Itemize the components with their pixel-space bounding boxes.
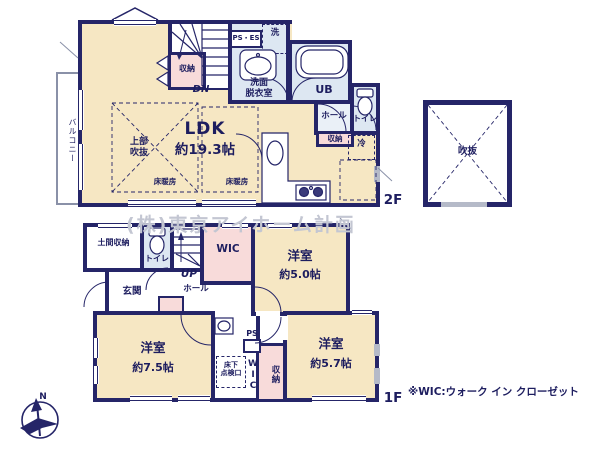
shoe-cabinet: [158, 296, 184, 313]
underfloor-label: 床下 点検口: [217, 361, 245, 378]
ldk-name-label: LDK: [160, 119, 250, 139]
storage-stairs-label: 収納: [172, 64, 202, 74]
ps-label: PS: [241, 329, 263, 339]
bath-label: UB: [302, 83, 346, 96]
balcony-label: バルコニー: [61, 95, 77, 185]
bedroom-a-name-label: 洋室: [274, 248, 326, 263]
ps-es-label: PS・ES: [229, 34, 263, 42]
floor-heating-label-1: 床暖房: [150, 177, 180, 186]
bedroom-b-size-label: 約7.5帖: [119, 361, 187, 374]
hall-2f-label: ホール: [313, 111, 355, 121]
toilet-2f-label: トイレ: [351, 114, 379, 124]
bedroom-b-name-label: 洋室: [127, 340, 179, 355]
washroom-label: 洗面 脱衣室: [232, 78, 286, 100]
void-label: 吹抜: [444, 146, 491, 157]
wic-1f-label: WIC: [204, 243, 252, 256]
storage-hall-label: 収納: [318, 134, 352, 143]
floor-2f-label: 2F: [380, 192, 406, 208]
washer-label: 洗: [265, 28, 285, 38]
wic-corridor-label: WIC: [244, 356, 258, 394]
dn-label: DN: [188, 84, 214, 96]
up-label: UP: [174, 268, 204, 281]
wic-note: ※WIC:ウォーク イン クローゼット: [408, 386, 594, 399]
doma-label: 土間収納: [86, 238, 141, 248]
floor-1f-label: 1F: [380, 390, 406, 406]
bedroom-c-name-label: 洋室: [305, 336, 357, 351]
ps-box: [243, 339, 261, 353]
fridge-label: 冷: [348, 139, 375, 149]
hall-1f-label: ホール: [174, 284, 218, 294]
compass-n-label: N: [36, 392, 50, 403]
entrance-label: 玄関: [112, 286, 152, 297]
floor-heating-label-2: 床暖房: [222, 177, 252, 186]
floor-plan-canvas: バルコニー LDK 約19.3帖 上部 吹抜 床暖房 床暖房 収納 DN PS・…: [0, 0, 600, 450]
bedroom-a-size-label: 約5.0帖: [266, 268, 334, 281]
bedroom-c-size-label: 約5.7帖: [297, 357, 365, 370]
storage-1f-label: 収納: [265, 356, 280, 392]
room-toilet-2f: [350, 83, 380, 135]
upper-void-label: 上部 吹抜: [122, 137, 156, 159]
room-bedroom-7-5: [93, 311, 215, 402]
toilet-1f-label: トイレ: [141, 254, 173, 264]
compass-icon: [20, 398, 58, 438]
bay-window-triangle: [112, 8, 158, 20]
ldk-size-label: 約19.3帖: [152, 142, 258, 158]
watermark: (株)東京アイホーム計画: [126, 210, 356, 237]
